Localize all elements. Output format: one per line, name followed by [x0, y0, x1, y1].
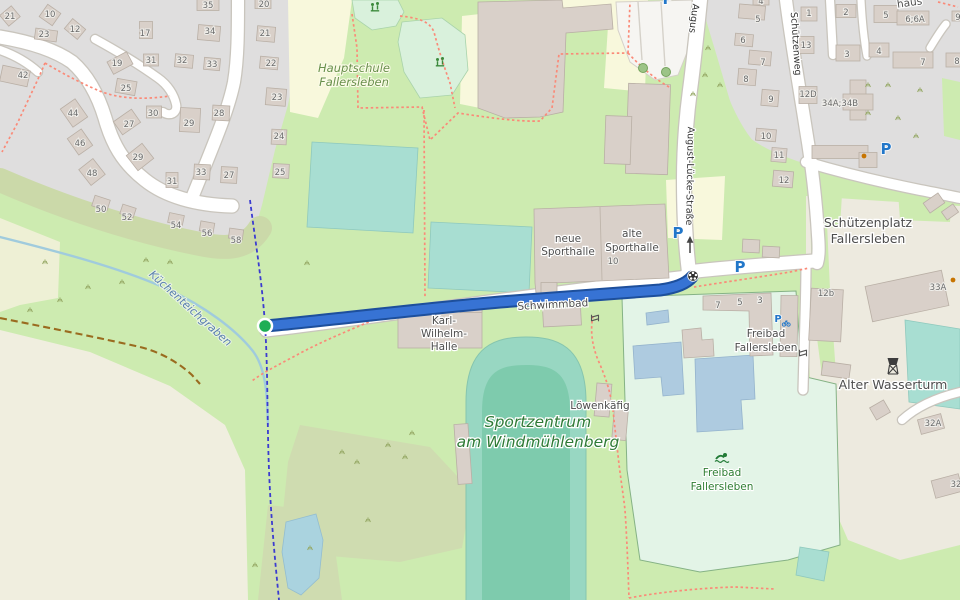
house-number: 12D [799, 90, 817, 100]
house-number: 10 [761, 132, 772, 142]
mini-roundabout-icon [695, 274, 698, 277]
house-number: 21 [260, 29, 271, 39]
house-number: 5 [737, 298, 742, 308]
house-number: 3 [844, 50, 849, 60]
parking-icon: P [881, 140, 892, 158]
building [859, 153, 877, 168]
house-number: 11 [774, 151, 785, 161]
map-label: Sportzentrum [485, 413, 591, 431]
house-number: 31 [146, 56, 157, 66]
route-start-marker[interactable] [258, 319, 272, 333]
map-label: Hauptschule [318, 61, 390, 75]
mini-roundabout-icon [689, 274, 692, 277]
map-label: am Windmühlenberg [457, 433, 620, 451]
mini-roundabout-icon [692, 272, 695, 275]
map-label: alte [622, 228, 642, 240]
house-number: 12 [779, 176, 790, 186]
playground-icon [371, 3, 374, 6]
house-number: 33 [196, 168, 207, 178]
house-number: 29 [184, 119, 195, 129]
map-label: 10 [608, 257, 619, 267]
house-number: 7 [920, 58, 925, 68]
entrance-dot [951, 278, 956, 283]
map-label: Freibad [703, 467, 742, 479]
map-label: Fallersleben [831, 231, 906, 246]
house-number: 56 [202, 229, 213, 239]
house-number: 52 [122, 213, 133, 223]
house-number: 19 [112, 59, 123, 69]
house-number: 7 [715, 301, 720, 311]
map-label: Fallersleben [319, 75, 389, 89]
map-label: Alter Wasserturm [839, 377, 948, 392]
map-label: Freibad [747, 328, 786, 340]
house-number: 35 [203, 1, 214, 11]
house-number: 8 [954, 57, 959, 67]
playground-icon [441, 57, 444, 60]
house-number: 27 [124, 120, 135, 130]
building [762, 246, 780, 258]
house-number: 12b [818, 289, 834, 299]
map-label: Fallersleben [691, 481, 754, 493]
map-label: Löwenkäfig [570, 400, 629, 412]
tree-icon [639, 64, 648, 73]
playground-icon [376, 2, 379, 5]
house-number: 22 [266, 59, 277, 69]
house-number: 28 [214, 109, 225, 119]
house-number: 7 [760, 58, 765, 68]
house-number: 25 [275, 168, 286, 178]
map-label: Karl- [432, 315, 456, 327]
map-label: Halle [431, 341, 458, 353]
house-number: 33A [930, 283, 947, 293]
house-number: 50 [96, 205, 107, 215]
map-label: August-Lücke-Straße [683, 127, 696, 226]
house-number: 2 [843, 8, 848, 18]
stub-2 [830, 0, 833, 55]
map-label: Fallersleben [735, 342, 798, 354]
region-pool-small [646, 310, 669, 325]
house-number: 31 [167, 177, 178, 187]
building [604, 116, 632, 165]
house-number: 27 [224, 171, 235, 181]
service-road-south [803, 263, 806, 390]
house-number: 5 [883, 11, 888, 21]
building [625, 83, 670, 174]
house-number: 23 [39, 30, 50, 40]
house-number: 9 [768, 95, 773, 105]
map-label: Wilhelm- [421, 328, 467, 340]
house-number: 32 [951, 480, 960, 490]
house-number: 8 [743, 75, 748, 85]
mini-roundabout-icon [690, 277, 693, 280]
house-number: 5 [755, 15, 760, 25]
house-number: 4 [876, 47, 881, 57]
house-number: 24 [274, 132, 285, 142]
house-number: 54 [171, 221, 182, 231]
parking-icon: P [663, 0, 674, 8]
entrance-dot [862, 154, 867, 159]
house-number: 1 [806, 9, 811, 19]
house-number: 10 [45, 10, 56, 20]
map-tiles: PPPPPHauptschuleFallerslebenneueSporthal… [0, 0, 960, 600]
map-canvas[interactable]: PPPPPHauptschuleFallerslebenneueSporthal… [0, 0, 960, 600]
house-number: 34A;34B [822, 99, 858, 109]
house-number: 34 [205, 27, 216, 37]
parking-icon: P [735, 258, 746, 276]
map-label: neue [555, 233, 581, 245]
bicycle-parking-icon: P [774, 314, 781, 325]
playground-icon [436, 58, 439, 61]
house-number: 13 [801, 41, 812, 51]
house-number: 23 [272, 93, 283, 103]
house-number: 9 [955, 13, 960, 23]
region-stadium-field [482, 365, 570, 600]
map-label: Schützenplatz [824, 215, 913, 230]
house-number: 30 [148, 109, 159, 119]
map-label: Sporthalle [541, 246, 595, 258]
house-number: 33 [207, 60, 218, 70]
house-number: 25 [121, 84, 132, 94]
house-number: 6;6A [905, 15, 925, 25]
house-number: 20 [259, 0, 270, 10]
house-number: 42 [18, 71, 29, 81]
building [742, 239, 760, 253]
house-number: 58 [231, 236, 242, 246]
house-number: 6 [740, 36, 745, 46]
house-number: 32 [177, 56, 188, 66]
map-label: Sporthalle [605, 242, 659, 254]
house-number: 21 [5, 12, 16, 22]
region-pitch-b [428, 222, 532, 293]
building [893, 52, 933, 68]
house-number: 17 [140, 29, 151, 39]
house-number: 48 [87, 169, 98, 179]
house-number: 12 [70, 25, 81, 35]
region-green-right-edge [942, 78, 960, 140]
region-teal-diamond [796, 547, 829, 581]
parking-icon: P [673, 224, 684, 242]
house-number: 44 [68, 109, 79, 119]
region-pitch-a [307, 142, 418, 233]
mini-roundabout-icon [694, 277, 697, 280]
tree-icon [662, 68, 671, 77]
house-number: 4 [758, 0, 763, 7]
house-number: 29 [133, 153, 144, 163]
house-number: 32A [925, 419, 942, 429]
house-number: 3 [757, 296, 762, 306]
mini-roundabout-icon [688, 271, 699, 282]
house-number: 46 [75, 139, 86, 149]
